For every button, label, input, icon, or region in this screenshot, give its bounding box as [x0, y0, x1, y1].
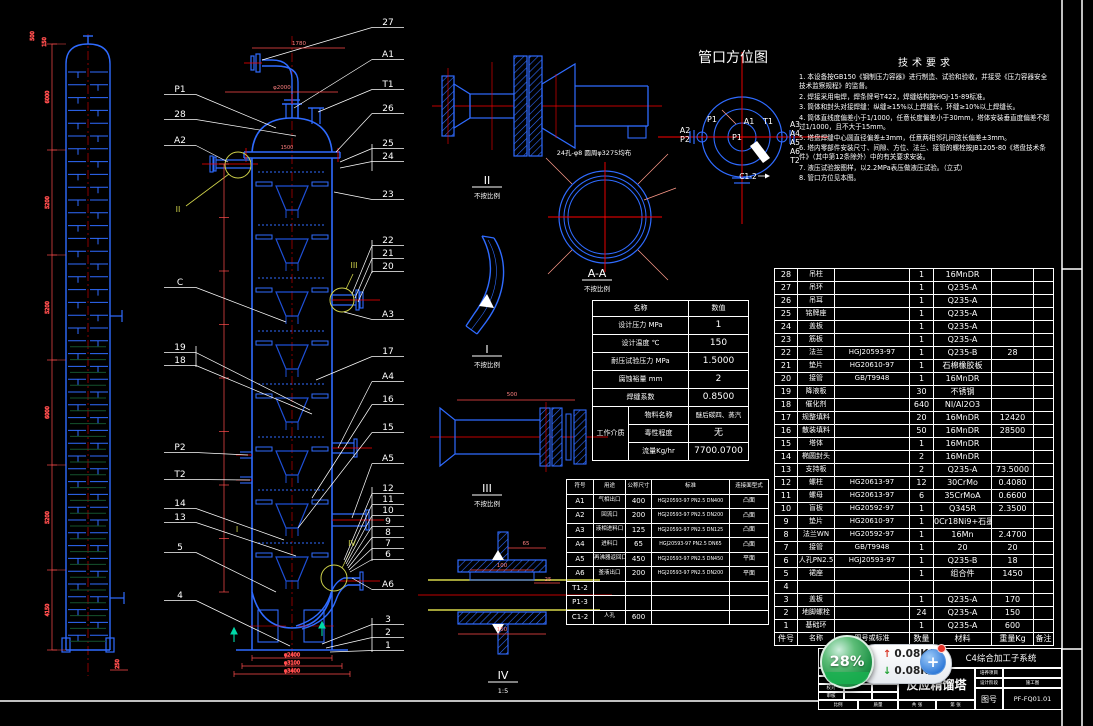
bom-cell	[1034, 282, 1054, 295]
bom-cell: 10	[775, 503, 798, 516]
bom-cell: 23	[775, 334, 798, 347]
bom-row: 24盖板1Q235-A	[775, 321, 1054, 334]
bom-cell: Q235-A	[934, 607, 992, 620]
bom-cell	[835, 620, 910, 633]
nozzle-cell: 再沸器返回口	[594, 552, 626, 567]
bom-cell	[1034, 594, 1054, 607]
bom-cell: 25	[775, 308, 798, 321]
bom-cell: 1	[910, 347, 934, 360]
tech-label: 腐蚀裕量 mm	[593, 371, 689, 389]
bom-cell	[1034, 360, 1054, 373]
bom-cell: Q235-A	[934, 334, 992, 347]
bom-cell	[1034, 555, 1054, 568]
bom-cell	[992, 282, 1034, 295]
callout-label: 13	[174, 513, 185, 523]
nozzle-cell: P1-3	[567, 596, 594, 611]
bom-cell: 12	[910, 477, 934, 490]
bom-cell	[835, 334, 910, 347]
bom-cell: 1	[910, 529, 934, 542]
bom-cell	[1034, 425, 1054, 438]
bom-row: 8法兰WNHG20592-97116Mn2.4700	[775, 529, 1054, 542]
bom-cell	[992, 399, 1034, 412]
bom-cell: Q235-B	[934, 555, 992, 568]
bom-cell: 盖板	[798, 321, 835, 334]
callout-label: 25	[382, 139, 393, 149]
bom-cell	[992, 308, 1034, 321]
tech-characteristics-table: 名称 数值 设计压力 MPa1 设计温度 ℃150 耐压试验压力 MPa1.50…	[592, 300, 749, 461]
bom-cell: 吊环	[798, 282, 835, 295]
dimension-label: 1780	[292, 41, 306, 47]
bom-cell: 20	[910, 412, 934, 425]
bom-cell	[910, 581, 934, 594]
bom-cell: 垫片	[798, 360, 835, 373]
orientation-title: 管口方位图	[698, 50, 768, 66]
bom-cell: HGJ20593-97	[835, 347, 910, 360]
bom-cell	[992, 295, 1034, 308]
upload-arrow-icon: ↑	[883, 649, 891, 660]
dimension-label: 100	[497, 563, 508, 569]
bom-cell: 6	[910, 490, 934, 503]
detail-ii-flange-section	[432, 56, 662, 156]
bom-cell	[1034, 503, 1054, 516]
dimension-label: φ3100	[284, 661, 300, 667]
bom-cell: 1	[910, 269, 934, 282]
bom-cell: 1	[910, 282, 934, 295]
bom-cell: 27	[775, 282, 798, 295]
nozzle-cell: 液相进料口	[594, 523, 626, 538]
title-block-field2-label: 设计阶段	[975, 678, 1003, 688]
title-block-field2-value: 施工图	[1003, 678, 1062, 688]
orientation-label: T1	[762, 117, 773, 126]
bom-cell: 1	[910, 555, 934, 568]
tech-value: 0.8500	[689, 389, 749, 407]
dimension-label: 5200	[45, 196, 51, 209]
bom-cell	[835, 451, 910, 464]
bom-cell: 接管	[798, 542, 835, 555]
bom-cell	[835, 399, 910, 412]
bom-cell: 11	[775, 490, 798, 503]
bom-cell	[992, 581, 1034, 594]
bom-cell	[835, 581, 910, 594]
title-block-field1-label: 培养项目	[975, 668, 1003, 678]
nozzle-cell: 600	[626, 610, 652, 625]
bom-cell	[835, 568, 910, 581]
nozzle-cell: 平面	[730, 552, 769, 567]
bom-cell: Q235-A	[934, 464, 992, 477]
bom-cell: 16MnDR	[934, 269, 992, 282]
detail-scale: 不按比例	[474, 360, 500, 369]
nozzle-cell: 釜液出口	[594, 567, 626, 582]
bom-row: 12螺柱HG20613-971230CrMo0.4080	[775, 477, 1054, 490]
bom-row: 10盲板HG20592-971Q345R2.3500	[775, 503, 1054, 516]
detail-scale: 不按比例	[584, 284, 610, 293]
detail-scale: 1:5	[498, 687, 508, 695]
bom-cell: 1450	[992, 568, 1034, 581]
bom-cell: 1	[910, 516, 934, 529]
bom-cell: 1	[775, 620, 798, 633]
callout-label: A3	[382, 310, 394, 320]
callout-label: 8	[385, 528, 391, 538]
bom-cell: 2	[910, 451, 934, 464]
nozzle-header-row: 符号用途公称尺寸标准连接面型式	[567, 480, 769, 495]
title-block-field1-value	[1003, 668, 1062, 678]
dimension-label: 5200	[45, 301, 51, 314]
bom-cell: 28	[775, 269, 798, 282]
section-aa-ring	[546, 154, 676, 280]
callout-label: 18	[174, 356, 186, 366]
bom-cell	[1034, 386, 1054, 399]
bom-cell: 16	[775, 425, 798, 438]
bom-cell: 垫片	[798, 516, 835, 529]
tech-value: 无	[689, 425, 749, 443]
callout-label: 24	[382, 152, 394, 162]
callout-label: 21	[382, 249, 393, 259]
tech-label: 设计温度 ℃	[593, 335, 689, 353]
bom-row: 2地脚螺栓24Q235-A150	[775, 607, 1054, 620]
bom-cell: 5	[775, 568, 798, 581]
dimension-label: 4150	[45, 604, 51, 617]
callout-label: 17	[382, 347, 393, 357]
nozzle-header-cell: 连接面型式	[730, 480, 769, 495]
bom-footer-cell: 重量Kg	[992, 633, 1034, 646]
bom-cell	[1034, 399, 1054, 412]
bom-cell	[1034, 568, 1054, 581]
bom-cell: 1	[910, 321, 934, 334]
bom-cell: 8	[775, 529, 798, 542]
bom-cell: Q235-A	[934, 594, 992, 607]
callout-label: 7	[385, 539, 391, 549]
bom-row: 22法兰HGJ20593-971Q235-B28	[775, 347, 1054, 360]
bom-cell	[992, 516, 1034, 529]
nozzle-cell	[652, 581, 730, 596]
nozzle-cell	[652, 596, 730, 611]
callout-label: 16	[382, 395, 394, 405]
bom-cell: 不锈钢	[934, 386, 992, 399]
tech-value: 1	[689, 317, 749, 335]
bom-cell: 14	[775, 451, 798, 464]
tech-value: 醚后碳四、蒸汽	[689, 407, 749, 425]
bom-cell: 基础环	[798, 620, 835, 633]
tech-medium-label: 工作介质	[593, 407, 629, 461]
title-block-scale: 比例	[818, 700, 858, 710]
callout-label: 28	[174, 110, 186, 120]
nozzle-cell: 回流口	[594, 509, 626, 524]
callout-label: 15	[382, 423, 393, 433]
bom-cell	[1034, 620, 1054, 633]
nozzle-cell: 125	[626, 523, 652, 538]
nozzle-cell: 凸面	[730, 538, 769, 553]
detail-scale: 不按比例	[474, 191, 500, 200]
bom-cell: 16MnDR	[934, 451, 992, 464]
bom-cell: 催化剂	[798, 399, 835, 412]
bom-cell: 73.5000	[992, 464, 1034, 477]
bom-cell: 19	[775, 386, 798, 399]
note-item: 6. 塔内零部件安装尺寸、间隙、方位、法兰、接管的螺栓按JB1205-80《塔盘…	[799, 144, 1053, 162]
bom-cell: 1	[910, 334, 934, 347]
callout-label: A6	[382, 580, 394, 590]
callout-label: 3	[385, 615, 391, 625]
bom-cell: 铭牌座	[798, 308, 835, 321]
bom-cell: 150	[992, 607, 1034, 620]
bom-cell: 人孔PN2.5	[798, 555, 835, 568]
dimension-label: 500	[30, 31, 36, 41]
dimension-label: φ3400	[284, 669, 300, 675]
tech-label: 流量Kg/hr	[629, 443, 689, 461]
bom-cell	[1034, 607, 1054, 620]
dimension-label: 25	[545, 577, 552, 583]
technical-notes: 技术要求 1. 本设备按GB150《钢制压力容器》进行制造、试验和验收，并接受《…	[799, 54, 1053, 185]
bom-cell	[1034, 451, 1054, 464]
title-block-mass: 质量	[858, 700, 898, 710]
detail-label: III	[482, 482, 492, 495]
nozzle-cell: 400	[626, 494, 652, 509]
bom-cell: 21	[775, 360, 798, 373]
title-block-dwgno: PF-FQ01.01	[1003, 688, 1062, 710]
detail-iii-nozzle	[430, 400, 608, 472]
callout-label: 22	[382, 236, 393, 246]
callout-label: 23	[382, 190, 393, 200]
nozzle-header-cell: 符号	[567, 480, 594, 495]
bom-cell	[1034, 477, 1054, 490]
bom-cell: 24	[775, 321, 798, 334]
bom-cell	[835, 321, 910, 334]
nozzle-cell: HGJ20593-97 PN2.5 DN125	[652, 523, 730, 538]
tech-header-value: 数值	[689, 301, 749, 317]
detail-label: I	[485, 343, 488, 356]
bom-cell	[835, 386, 910, 399]
nozzle-cell: C1-2	[567, 610, 594, 625]
bom-cell	[1034, 295, 1054, 308]
bom-cell: 1	[910, 568, 934, 581]
nozzle-cell: A3	[567, 523, 594, 538]
nozzle-cell	[626, 581, 652, 596]
bom-cell: 螺柱	[798, 477, 835, 490]
bom-cell: Q235-A	[934, 295, 992, 308]
bom-cell: 盲板	[798, 503, 835, 516]
detail-label: A-A	[588, 267, 607, 280]
nozzle-cell: 凸面	[730, 494, 769, 509]
progress-ball[interactable]: 28%	[820, 635, 874, 689]
bom-cell: 7	[775, 542, 798, 555]
bom-cell: Q235-A	[934, 620, 992, 633]
bom-cell	[835, 295, 910, 308]
nozzle-cell: A2	[567, 509, 594, 524]
bom-cell: 2	[775, 607, 798, 620]
bom-cell	[992, 360, 1034, 373]
bom-cell: Q235-A	[934, 308, 992, 321]
bom-cell	[1034, 347, 1054, 360]
bom-cell: 椭圆封头	[798, 451, 835, 464]
bom-cell: GB/T9948	[835, 373, 910, 386]
callout-label: T1	[381, 80, 393, 90]
bom-cell: Q235-A	[934, 282, 992, 295]
callout-label: 5	[177, 543, 183, 553]
nozzle-cell: A4	[567, 538, 594, 553]
bom-cell: 散装填料	[798, 425, 835, 438]
bom-row: 5裙座1组合件1450	[775, 568, 1054, 581]
bom-cell	[835, 438, 910, 451]
bom-cell: 1	[910, 594, 934, 607]
bom-cell: GB/T9948	[835, 542, 910, 555]
bom-cell: 降液板	[798, 386, 835, 399]
bom-cell: 15	[775, 438, 798, 451]
bom-row: 9垫片HG20610-9710Cr18Ni9+石墨	[775, 516, 1054, 529]
bom-cell	[1034, 308, 1054, 321]
bom-cell: 法兰WN	[798, 529, 835, 542]
bom-cell: 35CrMoA	[934, 490, 992, 503]
callout-label: 26	[382, 104, 394, 114]
bom-cell: 2	[910, 464, 934, 477]
bom-cell: 2.3500	[992, 503, 1034, 516]
bom-row: 21垫片HG20610-971石棉橡胶板	[775, 360, 1054, 373]
bom-cell: 吊耳	[798, 295, 835, 308]
nozzle-cell	[652, 610, 730, 625]
bom-cell: 吊柱	[798, 269, 835, 282]
bom-cell: 1	[910, 503, 934, 516]
bom-cell: HG20610-97	[835, 516, 910, 529]
bom-cell	[835, 269, 910, 282]
bom-cell: 170	[992, 594, 1034, 607]
bom-cell: 1	[910, 438, 934, 451]
bom-cell: 16MnDR	[934, 412, 992, 425]
bom-cell	[1034, 516, 1054, 529]
bom-cell: 塔体	[798, 438, 835, 451]
note-item: 1. 本设备按GB150《钢制压力容器》进行制造、试验和验收，并接受《压力容器安…	[799, 73, 1053, 91]
nozzle-row: A1气相出口400HGJ20593-97 PN2.5 DN400凸面	[567, 494, 769, 509]
progress-percent: 28%	[822, 637, 872, 687]
bom-row: 18催化剂640NI/Al2O3	[775, 399, 1054, 412]
bom-cell: 1	[910, 542, 934, 555]
nozzle-cell: 凸面	[730, 509, 769, 524]
bom-cell: 28	[992, 347, 1034, 360]
title-block-role: 审核	[818, 692, 844, 700]
note-item: 2. 焊接采用电焊，焊条牌号T422，焊缝结构按HGJ-15-89标准。	[799, 93, 1053, 102]
bom-cell	[798, 581, 835, 594]
bom-cell: 0.4080	[992, 477, 1034, 490]
bom-cell: 16Mn	[934, 529, 992, 542]
bom-cell: HG20592-97	[835, 503, 910, 516]
bom-cell: 16MnDR	[934, 438, 992, 451]
nozzle-header-cell: 用途	[594, 480, 626, 495]
notification-dot	[937, 644, 946, 653]
bom-cell	[1034, 438, 1054, 451]
bom-cell	[992, 386, 1034, 399]
bom-cell: 30	[910, 386, 934, 399]
callout-label: A4	[382, 372, 394, 382]
bom-cell	[835, 594, 910, 607]
callout-label: 27	[382, 18, 393, 28]
nozzle-row: P1-3	[567, 596, 769, 611]
orientation-label: A1	[744, 117, 755, 126]
note-item: 7. 液压试验按图样，以2.2MPa表压做液压试验。（立式）	[799, 164, 1053, 173]
cad-canvas: 600052005200600052004150500150250	[0, 0, 1093, 726]
callout-label: 12	[382, 484, 393, 494]
detail-marker: I	[236, 525, 238, 534]
holes-annotation: 24孔-φ8 圆周φ3275均布	[557, 148, 632, 157]
nozzle-cell: T1-2	[567, 581, 594, 596]
bom-cell	[1034, 334, 1054, 347]
bom-cell	[835, 308, 910, 321]
nozzle-row: T1-2	[567, 581, 769, 596]
nozzle-row: A6釜液出口200HGJ20593-97 PN2.5 DN200平面	[567, 567, 769, 582]
title-block-sheets: 共 张	[898, 700, 936, 710]
nozzle-cell	[594, 596, 626, 611]
callout-label: 6	[385, 550, 391, 560]
bom-cell: 18	[775, 399, 798, 412]
dimension-label: 250	[115, 659, 121, 669]
title-block-sheet-no: 第 张	[936, 700, 975, 710]
bom-cell: 接管	[798, 373, 835, 386]
callout-label: 14	[174, 499, 186, 509]
nozzle-cell: 气相出口	[594, 494, 626, 509]
download-arrow-icon: ↓	[883, 666, 891, 677]
callout-label: 1	[385, 641, 391, 651]
bom-cell: 筋板	[798, 334, 835, 347]
detail-label: IV	[498, 669, 509, 682]
plus-icon: +	[927, 653, 940, 671]
callout-label: A5	[382, 454, 394, 464]
bom-cell: 2.4700	[992, 529, 1034, 542]
orientation-label: P1	[707, 115, 717, 124]
nozzle-row: A4进料口65HGJ20593-97 PN2.5 DN65凸面	[567, 538, 769, 553]
nozzle-schedule-table: 符号用途公称尺寸标准连接面型式A1气相出口400HGJ20593-97 PN2.…	[566, 479, 769, 625]
nozzle-cell: 人孔	[594, 610, 626, 625]
bom-cell: 6	[775, 555, 798, 568]
nozzle-cell: 进料口	[594, 538, 626, 553]
bom-cell	[1034, 321, 1054, 334]
bom-cell	[934, 581, 992, 594]
bom-cell	[1034, 581, 1054, 594]
bom-cell	[1034, 269, 1054, 282]
bom-cell	[1034, 529, 1054, 542]
nozzle-cell: A1	[567, 494, 594, 509]
callout-label: P1	[174, 85, 185, 95]
nozzle-cell: 450	[626, 552, 652, 567]
title-block-project: C4综合加工子系统	[940, 648, 1062, 668]
dimension-label: 500	[507, 392, 518, 398]
nozzle-cell	[730, 596, 769, 611]
bom-cell: 3	[775, 594, 798, 607]
bom-cell: 16MnDR	[934, 425, 992, 438]
bom-cell: HGJ20593-97	[835, 555, 910, 568]
bom-cell: 50	[910, 425, 934, 438]
bom-cell	[992, 451, 1034, 464]
bom-row: 27吊环1Q235-A	[775, 282, 1054, 295]
bom-row: 14椭圆封头216MnDR	[775, 451, 1054, 464]
bom-cell	[835, 282, 910, 295]
floating-speed-widget[interactable]: ↑0.08K/s ↓0.08K/s + 28%	[820, 632, 956, 692]
bom-cell: 1	[910, 360, 934, 373]
note-item: 4. 筒体直线度偏差小于1/1000，任意长度偏差小于30mm，塔体安装垂直度偏…	[799, 114, 1053, 132]
nozzle-cell	[594, 581, 626, 596]
bom-cell: Q235-B	[934, 347, 992, 360]
callout-label: T2	[173, 470, 185, 480]
detail-label: II	[484, 174, 491, 187]
orientation-label: A2	[680, 126, 691, 135]
nozzle-cell: HGJ20593-97 PN2.5 DN450	[652, 552, 730, 567]
nozzle-cell	[730, 581, 769, 596]
bom-row: 7接管GB/T994812020	[775, 542, 1054, 555]
bom-cell	[992, 269, 1034, 282]
bom-cell: 20	[775, 373, 798, 386]
callout-label: 20	[382, 262, 394, 272]
detail-i-plate	[466, 236, 504, 334]
bom-row: 28吊柱116MnDR	[775, 269, 1054, 282]
nozzle-header-cell: 标准	[652, 480, 730, 495]
callout-label: 2	[385, 628, 391, 638]
note-item: 3. 筒体和封头对接焊缝：纵缝≥15%以上焊缝长，环缝≥10%以上焊缝长。	[799, 103, 1053, 112]
tech-label: 物料名称	[629, 407, 689, 425]
